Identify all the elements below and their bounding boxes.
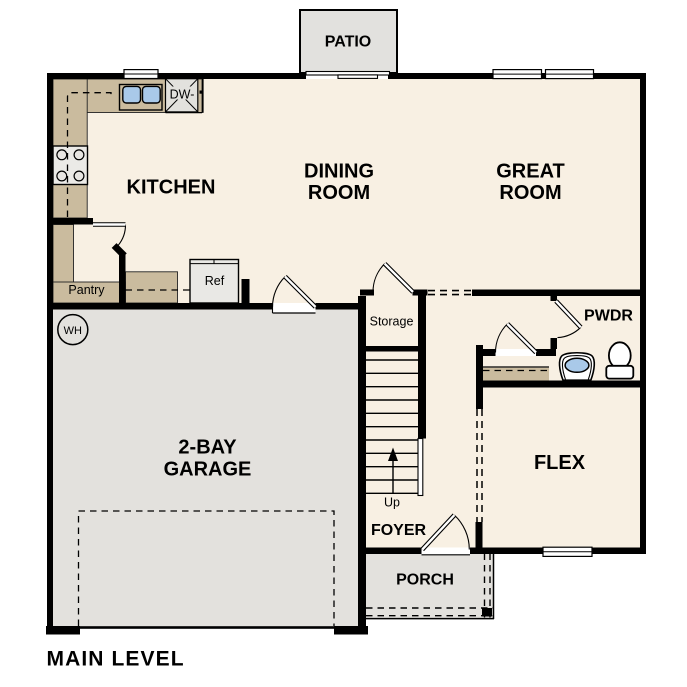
svg-text:DW-: DW- xyxy=(170,87,195,101)
svg-text:ROOM: ROOM xyxy=(308,182,370,204)
svg-text:KITCHEN: KITCHEN xyxy=(127,177,216,199)
svg-text:Pantry: Pantry xyxy=(68,283,105,297)
svg-text:Storage: Storage xyxy=(370,315,414,329)
svg-text:PORCH: PORCH xyxy=(396,572,454,589)
svg-text:Ref: Ref xyxy=(205,274,225,288)
svg-text:ROOM: ROOM xyxy=(499,182,561,204)
svg-text:GREAT: GREAT xyxy=(496,161,565,183)
svg-text:DINING: DINING xyxy=(304,161,374,183)
svg-text:PWDR: PWDR xyxy=(584,308,633,325)
svg-text:PATIO: PATIO xyxy=(325,34,372,51)
svg-text:FOYER: FOYER xyxy=(371,522,427,539)
svg-text:GARAGE: GARAGE xyxy=(164,459,252,481)
svg-text:Up: Up xyxy=(384,496,400,510)
svg-text:MAIN LEVEL: MAIN LEVEL xyxy=(47,648,185,671)
svg-text:FLEX: FLEX xyxy=(534,452,586,474)
svg-text:2-BAY: 2-BAY xyxy=(178,437,237,459)
svg-text:WH: WH xyxy=(64,325,82,337)
